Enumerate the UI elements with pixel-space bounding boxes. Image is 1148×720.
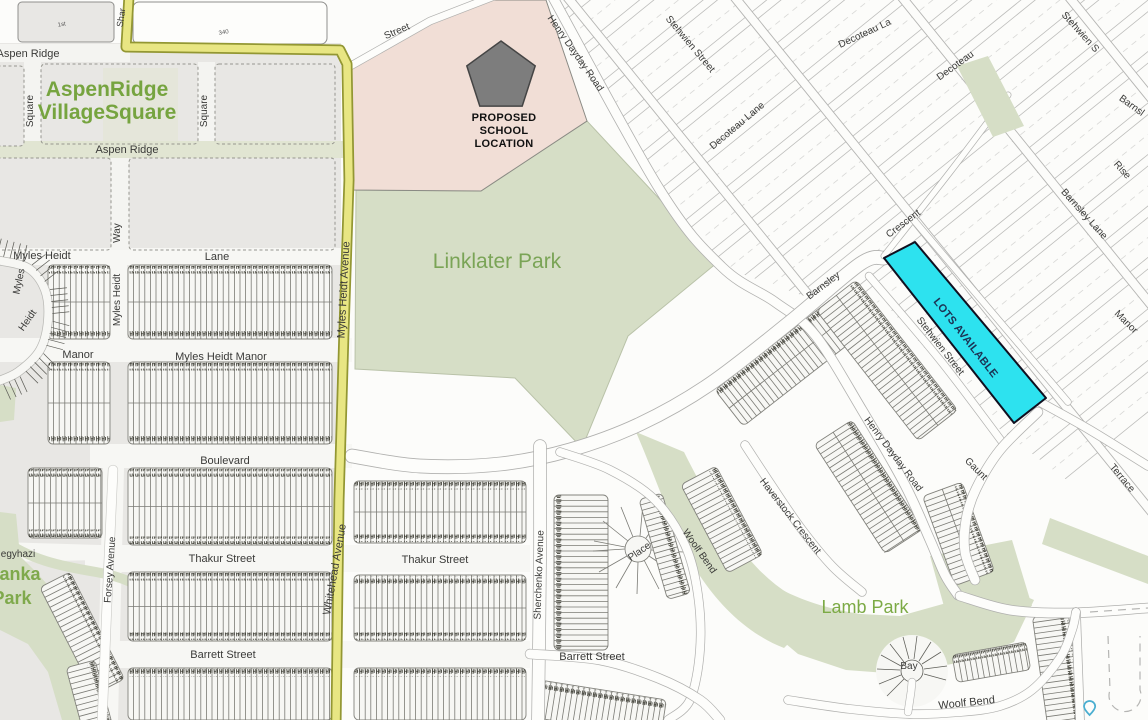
svg-text:Thakur Street: Thakur Street	[189, 553, 256, 565]
svg-text:VillageSquare: VillageSquare	[38, 101, 177, 124]
svg-text:Park: Park	[0, 588, 32, 608]
svg-text:Lane: Lane	[205, 251, 229, 263]
svg-text:Bay: Bay	[900, 661, 917, 672]
svg-text:Thakur Street: Thakur Street	[402, 554, 469, 566]
svg-text:AspenRidge: AspenRidge	[46, 78, 169, 101]
svg-text:Linklater Park: Linklater Park	[433, 250, 562, 273]
svg-text:Square: Square	[199, 94, 210, 127]
svg-text:PROPOSED: PROPOSED	[472, 112, 537, 124]
svg-text:Barrett Street: Barrett Street	[559, 651, 624, 663]
svg-text:Lamb Park: Lamb Park	[821, 597, 909, 617]
svg-text:Aspen Ridge: Aspen Ridge	[0, 48, 60, 60]
svg-text:Myles Heidt Manor: Myles Heidt Manor	[175, 351, 267, 363]
svg-text:LOCATION: LOCATION	[474, 138, 533, 150]
svg-text:Way: Way	[112, 223, 123, 243]
svg-text:Square: Square	[25, 94, 36, 127]
svg-text:Boulevard: Boulevard	[200, 455, 250, 467]
svg-text:Manor: Manor	[62, 349, 94, 361]
svg-text:Aspen Ridge: Aspen Ridge	[96, 144, 159, 156]
svg-text:Myles Heidt: Myles Heidt	[13, 250, 70, 262]
svg-text:SCHOOL: SCHOOL	[480, 125, 529, 137]
svg-text:Barrett Street: Barrett Street	[190, 649, 255, 661]
svg-text:Myles Heidt: Myles Heidt	[112, 274, 123, 326]
svg-text:egyhazi: egyhazi	[1, 549, 35, 560]
svg-text:anka: anka	[0, 564, 42, 584]
